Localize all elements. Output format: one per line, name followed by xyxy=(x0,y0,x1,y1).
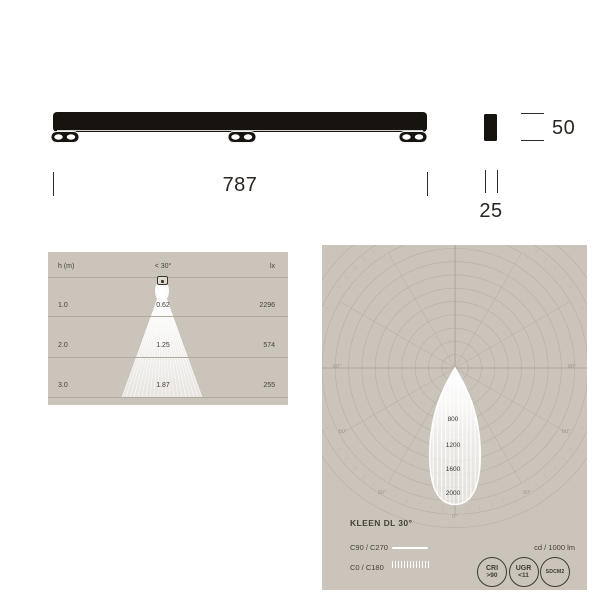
angle-label-right-90: 90° xyxy=(565,364,579,371)
ugr-badge-value: <11 xyxy=(518,572,529,579)
cri-badge-value: >90 xyxy=(486,572,497,579)
sdcm-badge-title: SDCM2 xyxy=(546,569,565,575)
legend-swatch-hatched xyxy=(392,561,429,568)
cri-badge-title: CRI xyxy=(486,565,498,573)
dim-length-label: 787 xyxy=(48,174,432,197)
mounting-foot-left xyxy=(51,132,79,143)
cd-ring-label: 1600 xyxy=(441,466,465,473)
angle-label-left-60: 60° xyxy=(336,429,350,436)
intensity-lobe-hatch-c0-c180 xyxy=(430,368,481,505)
table-divider xyxy=(48,316,288,317)
table-divider xyxy=(48,397,288,398)
height-value: 1.0 xyxy=(58,301,68,310)
col-header-height: h (m) xyxy=(58,262,74,271)
cri-badge: CRI >90 xyxy=(477,557,507,587)
luminaire-icon xyxy=(157,276,168,285)
dim-25-tick-left xyxy=(485,170,486,193)
ugr-badge-title: UGR xyxy=(516,565,532,573)
diameter-value: 1.87 xyxy=(133,381,193,390)
polar-diagram-panel: 800 1200 1600 2000 90° 60° 30° 0° 30° 60… xyxy=(322,245,587,590)
angle-label-left-30: 30° xyxy=(375,490,389,497)
product-title: KLEEN DL 30° xyxy=(350,518,412,528)
cone-diagram-panel: h (m) < 30° lx 1.0 0.62 2296 2.0 1.25 57… xyxy=(48,252,288,405)
angle-label-right-30: 30° xyxy=(520,490,534,497)
diameter-value: 1.25 xyxy=(133,341,193,350)
cd-ring-label: 1200 xyxy=(441,442,465,449)
legend-swatch-solid xyxy=(392,547,428,549)
dim-25-tick-right xyxy=(497,170,498,193)
unit-label: cd / 1000 lm xyxy=(534,543,575,552)
col-header-lux: lx xyxy=(270,262,275,271)
diameter-value: 0.62 xyxy=(133,301,193,310)
lux-value: 2296 xyxy=(259,301,275,310)
luminaire-side-view xyxy=(48,108,432,148)
cd-ring-label: 2000 xyxy=(441,490,465,497)
angle-label-0: 0° xyxy=(448,514,462,521)
luminaire-body xyxy=(53,112,427,132)
dim-50-tick-top xyxy=(521,113,544,114)
legend-label-c0-c180: C0 / C180 xyxy=(350,563,384,572)
angle-label-left-90: 90° xyxy=(330,364,344,371)
table-divider xyxy=(48,277,288,278)
dim-width-label: 25 xyxy=(474,200,508,223)
lux-value: 574 xyxy=(263,341,275,350)
height-value: 3.0 xyxy=(58,381,68,390)
mounting-foot-center xyxy=(228,132,256,143)
sdcm-badge: SDCM2 xyxy=(540,557,570,587)
dim-height-label: 50 xyxy=(552,117,575,140)
height-value: 2.0 xyxy=(58,341,68,350)
lux-value: 255 xyxy=(263,381,275,390)
ugr-badge: UGR <11 xyxy=(509,557,539,587)
angle-label-right-60: 60° xyxy=(559,429,573,436)
legend-label-c90-c270: C90 / C270 xyxy=(350,543,388,552)
mounting-foot-right xyxy=(399,132,427,143)
luminaire-end-view xyxy=(484,114,497,141)
table-divider xyxy=(48,357,288,358)
dim-50-tick-bottom xyxy=(521,140,544,141)
col-header-beam-angle: < 30° xyxy=(133,262,193,271)
cd-ring-label: 800 xyxy=(441,416,465,423)
